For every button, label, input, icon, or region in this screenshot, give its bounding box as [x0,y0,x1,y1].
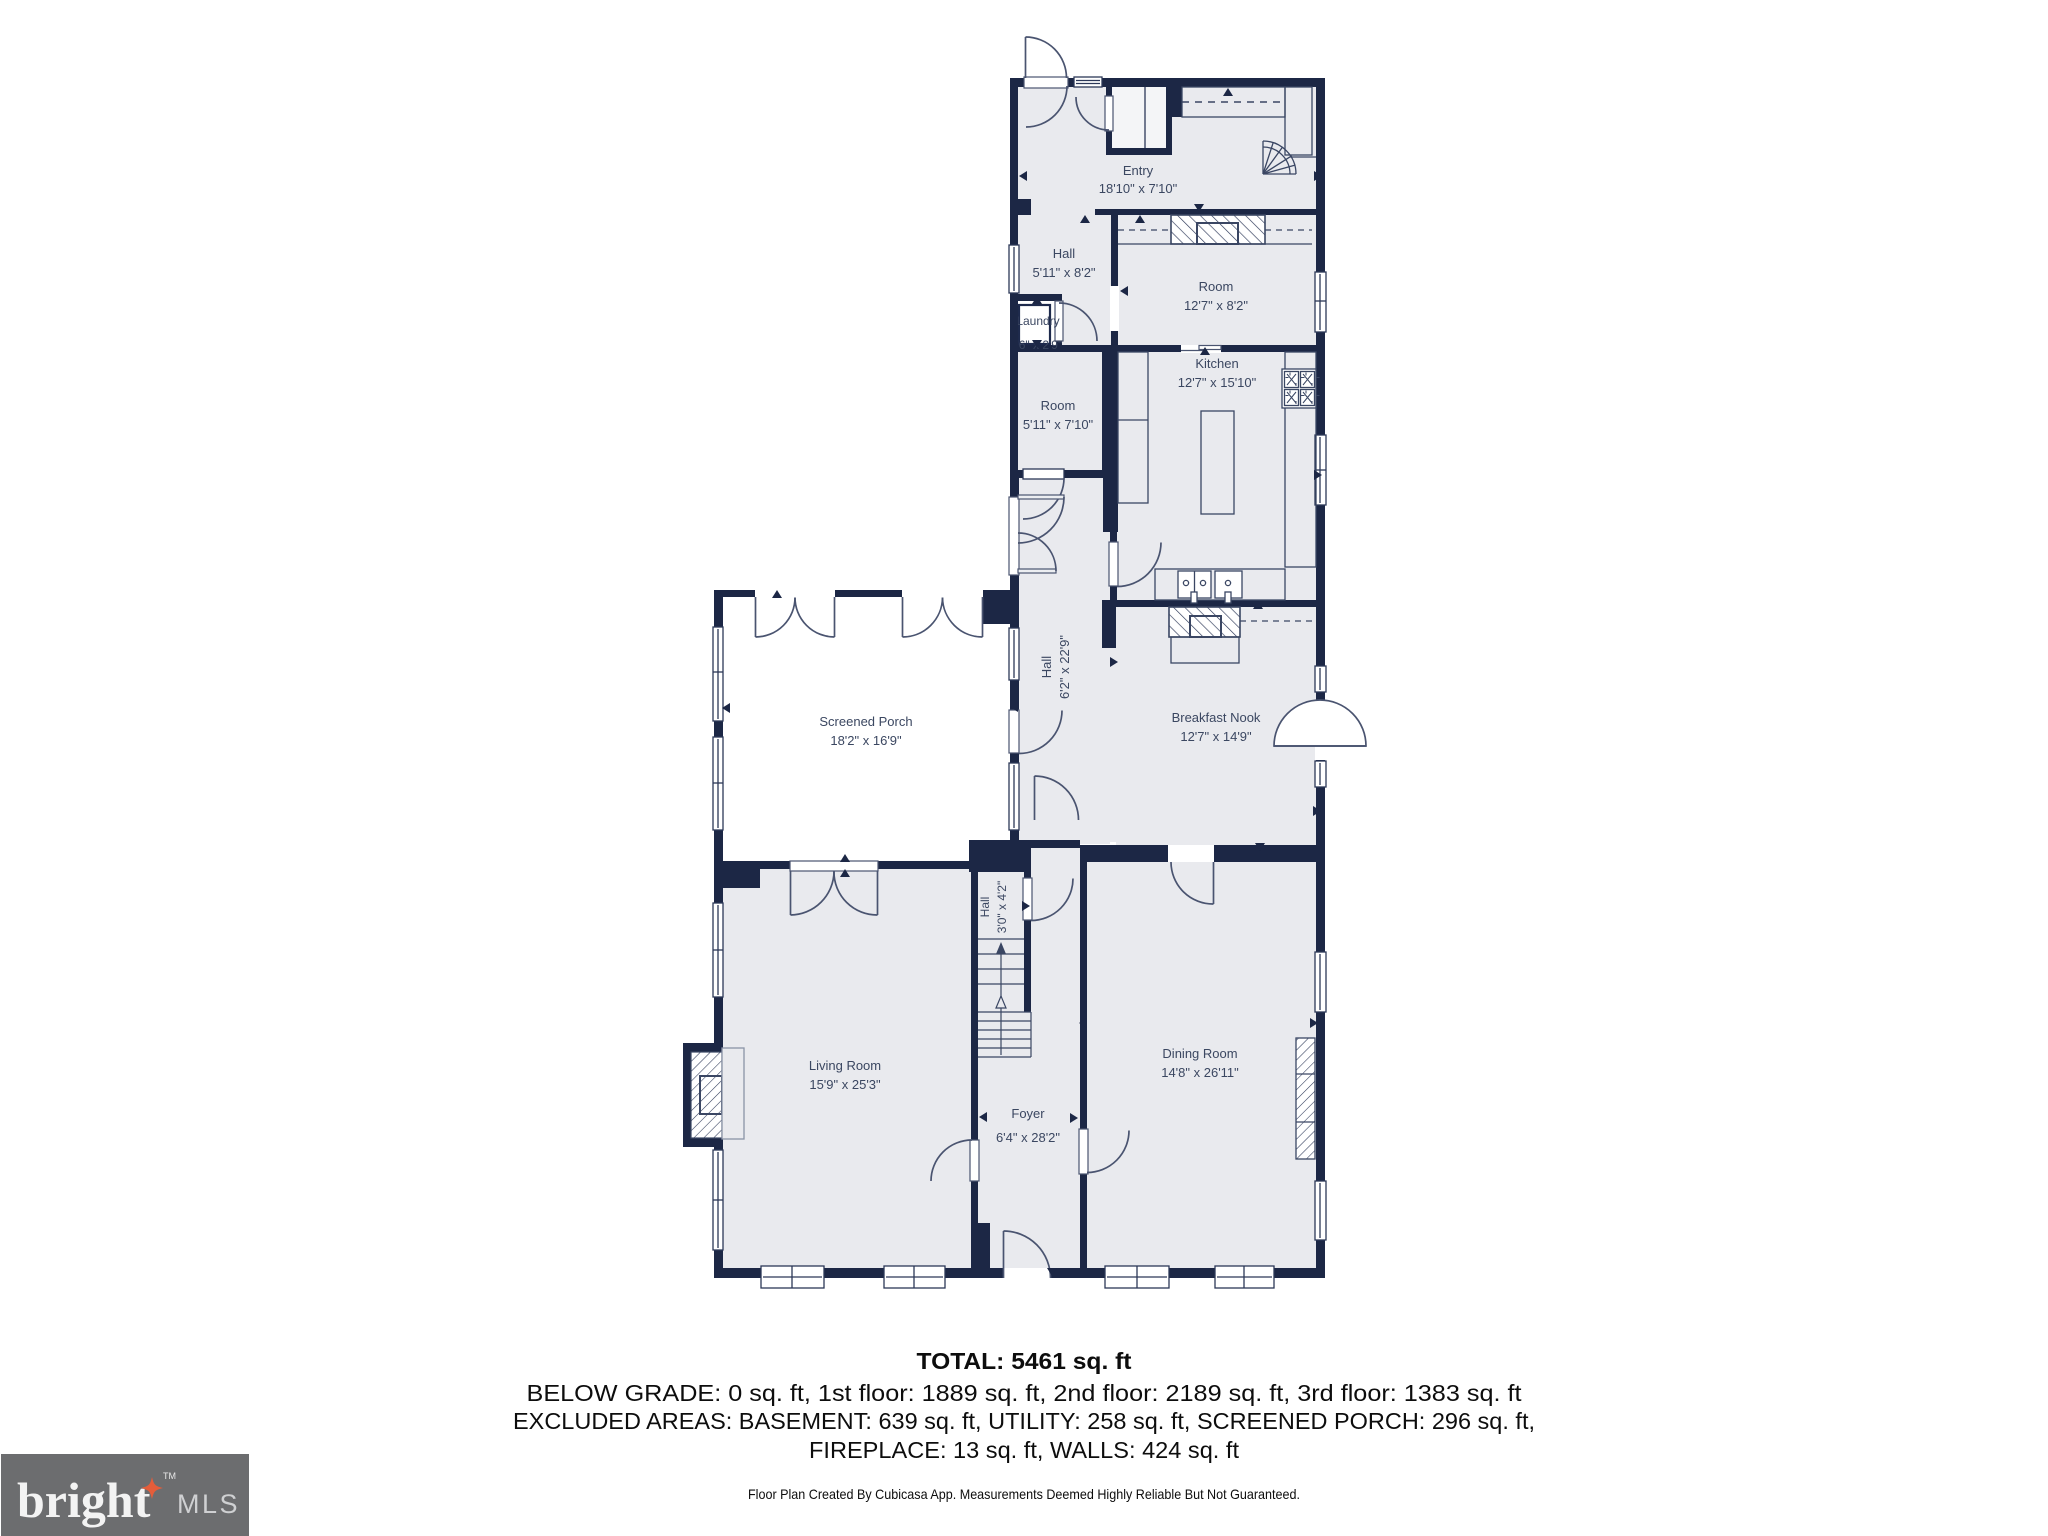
svg-text:Room: Room [1199,279,1234,294]
svg-text:Screened Porch: Screened Porch [819,714,912,729]
svg-text:Foyer: Foyer [1011,1106,1045,1121]
svg-text:TOTAL: 5461 sq. ft: TOTAL: 5461 sq. ft [917,1348,1132,1374]
svg-text:6'2" x 22'9": 6'2" x 22'9" [1057,635,1072,699]
svg-text:Hall: Hall [978,897,992,918]
svg-text:MLS: MLS [177,1489,240,1519]
svg-text:TM: TM [163,1471,176,1481]
svg-text:12'7" x 8'2": 12'7" x 8'2" [1184,298,1248,313]
svg-text:EXCLUDED AREAS: BASEMENT: 639: EXCLUDED AREAS: BASEMENT: 639 sq. ft, UT… [513,1408,1535,1434]
svg-text:14'8" x 26'11": 14'8" x 26'11" [1161,1065,1239,1080]
svg-text:18'2" x 16'9": 18'2" x 16'9" [830,733,902,748]
svg-text:18'10" x 7'10": 18'10" x 7'10" [1099,181,1178,196]
svg-text:6'4" x 28'2": 6'4" x 28'2" [996,1130,1060,1145]
svg-text:Hall: Hall [1039,656,1054,679]
svg-text:bright: bright [17,1472,151,1528]
svg-text:Laundry: Laundry [1016,314,1059,328]
svg-text:12'7" x 14'9": 12'7" x 14'9" [1180,729,1252,744]
svg-text:5'11" x 8'2": 5'11" x 8'2" [1032,265,1095,280]
svg-text:Kitchen: Kitchen [1195,356,1238,371]
svg-text:15'9" x 25'3": 15'9" x 25'3" [809,1077,881,1092]
svg-text:BELOW GRADE: 0 sq. ft, 1st flo: BELOW GRADE: 0 sq. ft, 1st floor: 1889 s… [527,1380,1523,1406]
svg-text:Room: Room [1041,398,1076,413]
svg-text:FIREPLACE: 13 sq. ft, WALLS: 4: FIREPLACE: 13 sq. ft, WALLS: 424 sq. ft [809,1437,1240,1463]
svg-text:Breakfast Nook: Breakfast Nook [1172,710,1261,725]
svg-text:Living Room: Living Room [809,1058,881,1073]
svg-text:3'0" x 4'2": 3'0" x 4'2" [995,881,1009,933]
svg-text:Hall: Hall [1053,246,1076,261]
svg-text:12'7" x 15'10": 12'7" x 15'10" [1178,375,1257,390]
svg-text:Floor Plan Created By Cubicasa: Floor Plan Created By Cubicasa App. Meas… [748,1486,1300,1502]
svg-text:Dining Room: Dining Room [1162,1046,1237,1061]
svg-text:5'11" x 7'10": 5'11" x 7'10" [1023,417,1094,432]
svg-text:Entry: Entry [1123,163,1154,178]
